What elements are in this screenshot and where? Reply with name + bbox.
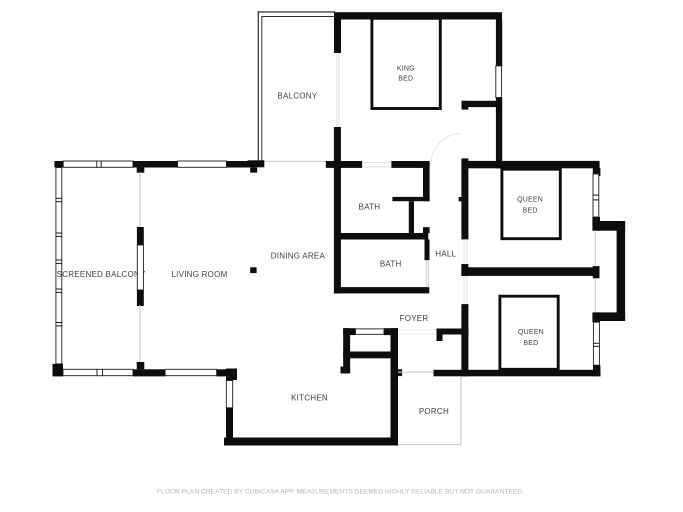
- svg-text:BED: BED: [523, 207, 538, 214]
- svg-text:DINING AREA: DINING AREA: [271, 252, 326, 261]
- svg-text:HALL: HALL: [435, 250, 456, 259]
- svg-text:KITCHEN: KITCHEN: [291, 393, 328, 402]
- svg-text:FLOOR PLAN CREATED BY CUBICASA: FLOOR PLAN CREATED BY CUBICASA APP. MEAS…: [157, 489, 524, 496]
- svg-text:BATH: BATH: [359, 203, 381, 212]
- svg-text:FOYER: FOYER: [400, 314, 429, 323]
- svg-text:LIVING ROOM: LIVING ROOM: [171, 270, 227, 279]
- svg-text:QUEEN: QUEEN: [517, 196, 543, 203]
- svg-text:KING: KING: [397, 65, 415, 72]
- svg-text:BATH: BATH: [380, 260, 402, 269]
- svg-text:PORCH: PORCH: [419, 407, 449, 416]
- svg-text:QUEEN: QUEEN: [518, 329, 544, 336]
- svg-text:BED: BED: [523, 340, 538, 347]
- svg-text:SCREENED BALCONY: SCREENED BALCONY: [57, 270, 146, 279]
- svg-text:BED: BED: [398, 76, 413, 83]
- svg-text:BALCONY: BALCONY: [277, 91, 317, 100]
